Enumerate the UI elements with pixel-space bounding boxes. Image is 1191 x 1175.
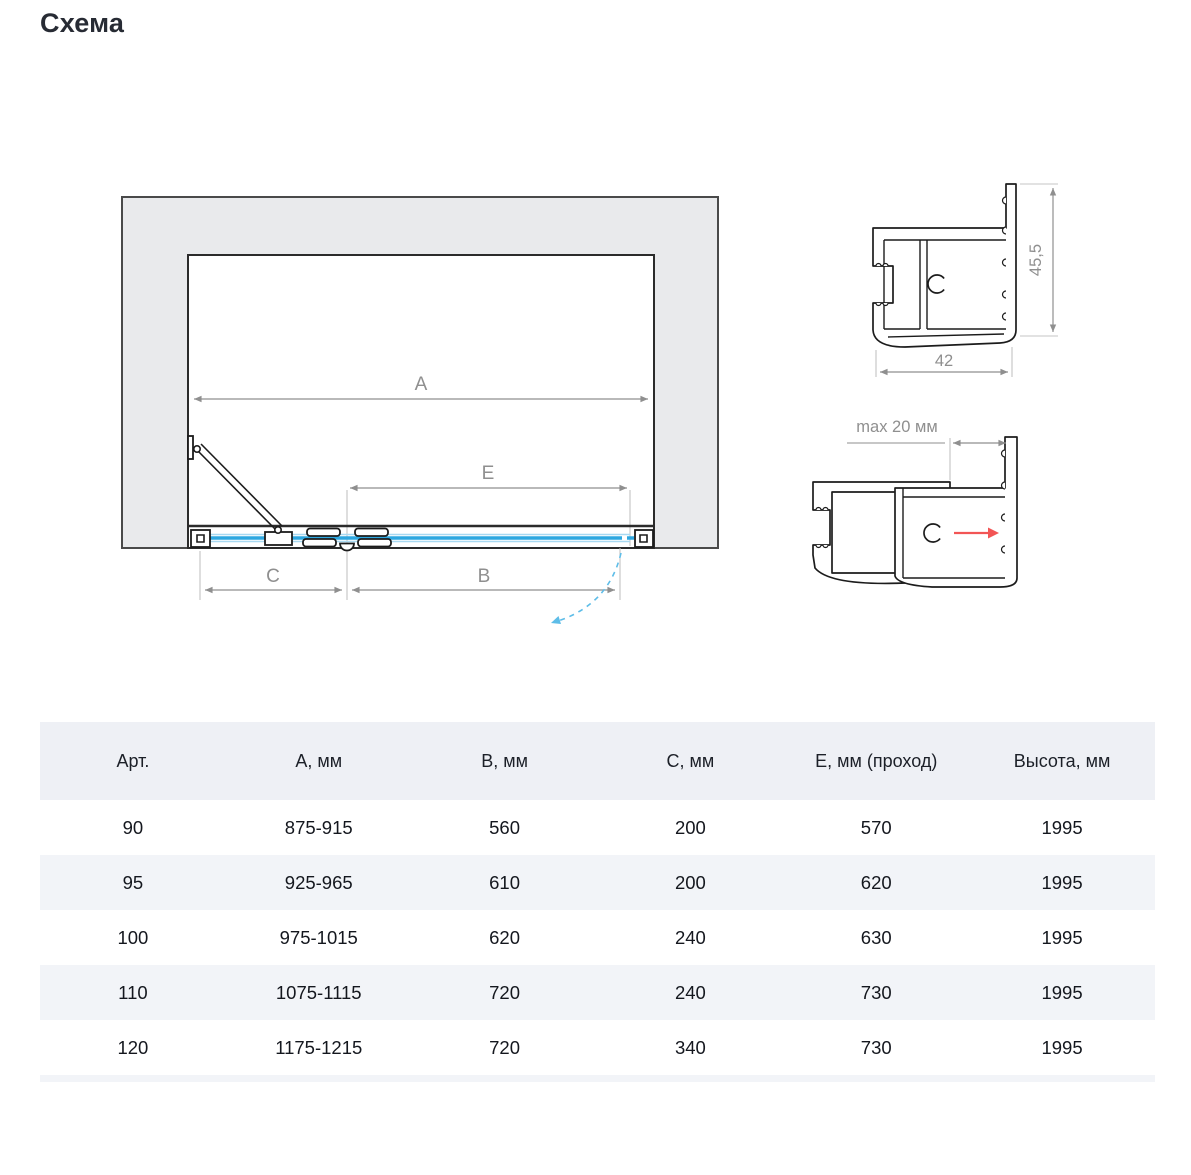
- handle-knob: [340, 544, 354, 551]
- cell-c: 240: [597, 965, 783, 1020]
- dim-e-label: E: [482, 463, 495, 484]
- plan-view: A E C B: [122, 197, 718, 624]
- cell-e: 570: [783, 800, 969, 855]
- size-table-body: 90 875-915 560 200 570 1995 95 925-965 6…: [40, 800, 1155, 1075]
- cell-b: 720: [412, 1020, 598, 1075]
- left-wall-bracket: [191, 530, 210, 547]
- col-art: Арт.: [40, 722, 226, 800]
- table-row: 100 975-1015 620 240 630 1995: [40, 910, 1155, 965]
- dim-width-label: 42: [935, 352, 953, 370]
- cell-a: 925-965: [226, 855, 412, 910]
- col-b: В, мм: [412, 722, 598, 800]
- cell-e: 730: [783, 965, 969, 1020]
- col-c: С, мм: [597, 722, 783, 800]
- table-row: 110 1075-1115 720 240 730 1995: [40, 965, 1155, 1020]
- scheme-diagram: A E C B: [0, 0, 1191, 700]
- profile-body-outline: [895, 437, 1017, 587]
- dimension-max20: max 20 мм: [847, 418, 1006, 480]
- header-row: Арт. А, мм В, мм С, мм Е, мм (проход) Вы…: [40, 722, 1155, 800]
- dim-c-label: C: [266, 566, 280, 587]
- profile-outline: [873, 184, 1016, 347]
- cell-height: 1995: [969, 855, 1155, 910]
- table-footer-strip: [40, 1075, 1155, 1082]
- cell-b: 610: [412, 855, 598, 910]
- size-table: Арт. А, мм В, мм С, мм Е, мм (проход) Вы…: [40, 722, 1155, 1075]
- col-height: Высота, мм: [969, 722, 1155, 800]
- profile-section-top: 45,5 42: [873, 184, 1058, 377]
- cell-b: 620: [412, 910, 598, 965]
- cell-c: 240: [597, 910, 783, 965]
- cell-e: 620: [783, 855, 969, 910]
- cell-a: 875-915: [226, 800, 412, 855]
- cell-art: 120: [40, 1020, 226, 1075]
- col-e: Е, мм (проход): [783, 722, 969, 800]
- cell-height: 1995: [969, 800, 1155, 855]
- dim-height-label: 45,5: [1027, 244, 1045, 276]
- dimension-c: C: [205, 566, 342, 590]
- cell-c: 200: [597, 800, 783, 855]
- dimension-height: 45,5: [1020, 184, 1058, 336]
- page: Схема: [0, 0, 1191, 1175]
- size-table-header: Арт. А, мм В, мм С, мм Е, мм (проход) Вы…: [40, 722, 1155, 800]
- dim-a-label: A: [415, 374, 428, 395]
- cell-a: 975-1015: [226, 910, 412, 965]
- table-row: 90 875-915 560 200 570 1995: [40, 800, 1155, 855]
- cell-a: 1075-1115: [226, 965, 412, 1020]
- cell-b: 720: [412, 965, 598, 1020]
- right-wall-bracket: [635, 530, 653, 547]
- cell-a: 1175-1215: [226, 1020, 412, 1075]
- cell-height: 1995: [969, 1020, 1155, 1075]
- size-table-wrap: Арт. А, мм В, мм С, мм Е, мм (проход) Вы…: [40, 722, 1155, 1082]
- cell-art: 100: [40, 910, 226, 965]
- cell-c: 200: [597, 855, 783, 910]
- niche-opening: [188, 255, 654, 548]
- dimension-width: 42: [876, 347, 1012, 377]
- cell-e: 630: [783, 910, 969, 965]
- table-row: 95 925-965 610 200 620 1995: [40, 855, 1155, 910]
- cell-height: 1995: [969, 910, 1155, 965]
- dimension-b: B: [352, 566, 615, 590]
- cell-c: 340: [597, 1020, 783, 1075]
- cell-b: 560: [412, 800, 598, 855]
- dim-b-label: B: [478, 566, 491, 587]
- cell-art: 90: [40, 800, 226, 855]
- profile-section-bottom: max 20 мм: [813, 418, 1017, 587]
- cell-art: 95: [40, 855, 226, 910]
- swing-arrowhead: [551, 616, 561, 624]
- cell-height: 1995: [969, 965, 1155, 1020]
- max20-label: max 20 мм: [856, 418, 937, 436]
- cell-e: 730: [783, 1020, 969, 1075]
- col-a: А, мм: [226, 722, 412, 800]
- table-row: 120 1175-1215 720 340 730 1995: [40, 1020, 1155, 1075]
- cell-art: 110: [40, 965, 226, 1020]
- door-swing-arc: [551, 553, 621, 624]
